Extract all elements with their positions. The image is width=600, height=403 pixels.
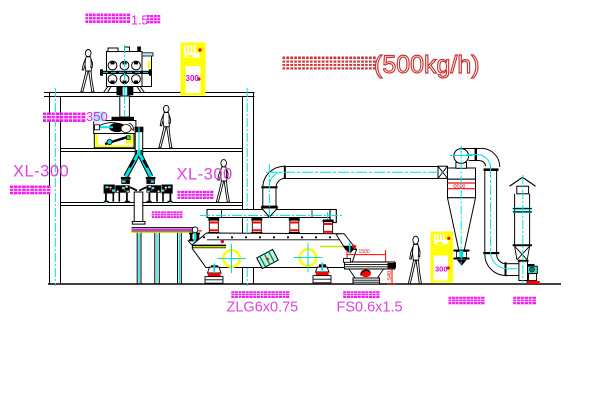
svg-text:300: 300	[186, 74, 200, 83]
svg-text:Φ500: Φ500	[453, 184, 466, 190]
svg-text:350: 350	[86, 109, 108, 124]
svg-text:1.5: 1.5	[131, 14, 148, 28]
svg-text:XL-300: XL-300	[13, 163, 69, 181]
svg-text:(500kg/h): (500kg/h)	[374, 51, 480, 79]
svg-text:FS0.6x1.5: FS0.6x1.5	[337, 300, 403, 316]
svg-text:300: 300	[435, 265, 448, 274]
svg-text:ZLG6x0.75: ZLG6x0.75	[227, 300, 299, 316]
svg-text:XL-300: XL-300	[177, 166, 233, 184]
svg-text:1500: 1500	[359, 249, 370, 255]
svg-text:540: 540	[387, 271, 393, 280]
